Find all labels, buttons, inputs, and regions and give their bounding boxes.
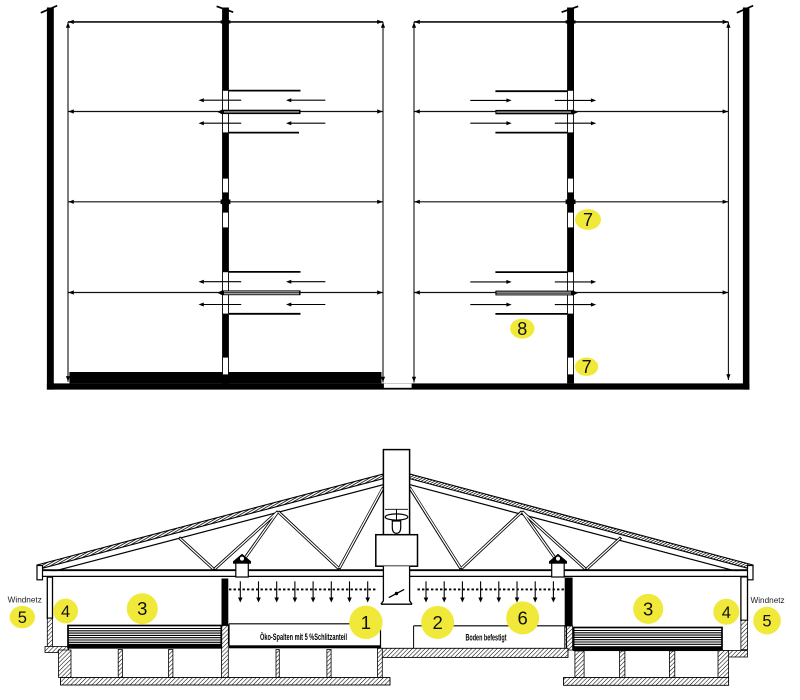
svg-text:Windnetz: Windnetz bbox=[8, 596, 42, 605]
svg-text:3: 3 bbox=[643, 598, 653, 619]
svg-text:6: 6 bbox=[518, 608, 528, 629]
svg-text:4: 4 bbox=[722, 604, 731, 622]
svg-text:1: 1 bbox=[361, 612, 371, 633]
svg-text:5: 5 bbox=[762, 613, 771, 631]
svg-text:4: 4 bbox=[61, 603, 70, 621]
svg-text:5: 5 bbox=[18, 609, 27, 627]
svg-text:3: 3 bbox=[137, 598, 147, 619]
svg-text:Boden befestigt: Boden befestigt bbox=[466, 632, 507, 643]
svg-text:2: 2 bbox=[432, 612, 442, 633]
svg-text:7: 7 bbox=[582, 357, 592, 377]
svg-text:Windnetz: Windnetz bbox=[751, 596, 785, 605]
svg-text:Öko-Spalten mit 5 %Schlitzante: Öko-Spalten mit 5 %Schlitzanteil bbox=[260, 632, 347, 643]
svg-text:7: 7 bbox=[583, 210, 593, 230]
svg-text:8: 8 bbox=[517, 319, 527, 339]
